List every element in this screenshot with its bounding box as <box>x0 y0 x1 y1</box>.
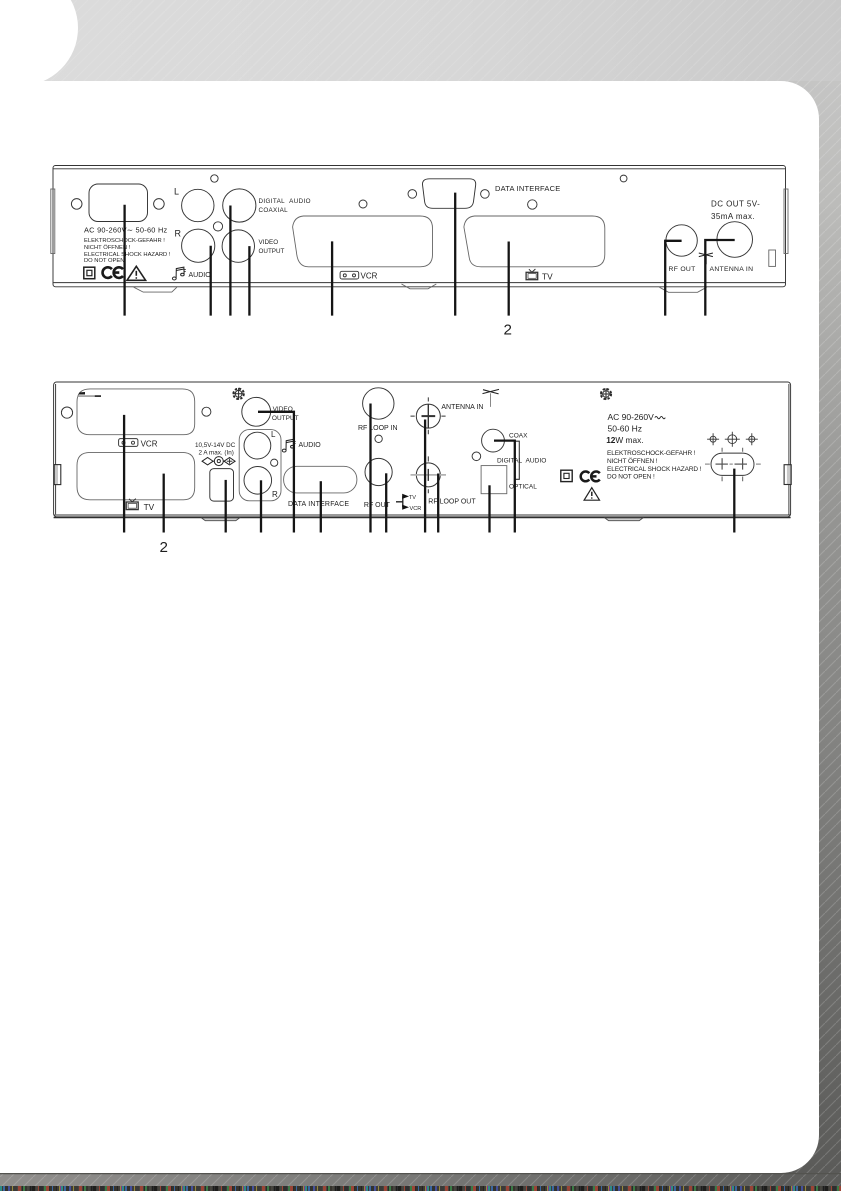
svg-text:NICHT ÖFFNEN !: NICHT ÖFFNEN ! <box>607 457 658 465</box>
svg-text:ELEKTROSCHOCK-GEFAHR !: ELEKTROSCHOCK-GEFAHR ! <box>607 450 696 457</box>
svg-text:DO NOT OPEN: DO NOT OPEN <box>84 258 124 264</box>
svg-text:50-60 Hz: 50-60 Hz <box>608 424 643 434</box>
svg-text:VCR: VCR <box>361 271 378 280</box>
svg-text:DC OUT 5V-: DC OUT 5V- <box>711 199 760 208</box>
svg-text:AUDIO: AUDIO <box>526 458 547 465</box>
svg-text:COAX: COAX <box>509 433 528 440</box>
svg-text:ANTENNA IN: ANTENNA IN <box>710 266 754 273</box>
svg-text:RF OUT: RF OUT <box>669 266 696 273</box>
svg-text:TV: TV <box>409 495 416 501</box>
svg-text:ANTENNA IN: ANTENNA IN <box>441 404 483 411</box>
svg-text:L: L <box>174 187 179 197</box>
svg-text:AC 90-260V: AC 90-260V <box>608 412 655 422</box>
svg-text:TV: TV <box>542 272 553 282</box>
svg-text:RF LOOP IN: RF LOOP IN <box>358 425 398 432</box>
svg-text:2: 2 <box>504 322 512 339</box>
svg-text:12W max.: 12W max. <box>606 435 643 445</box>
svg-text:2: 2 <box>160 539 168 556</box>
svg-text:DATA INTERFACE: DATA INTERFACE <box>288 501 349 508</box>
svg-text:RF LOOP OUT: RF LOOP OUT <box>428 499 476 506</box>
svg-text:OUTPUT: OUTPUT <box>259 248 285 255</box>
svg-text:AC 90-260V∼ 50-60 Hz: AC 90-260V∼ 50-60 Hz <box>84 225 168 234</box>
svg-text:DATA INTERFACE: DATA INTERFACE <box>495 184 560 193</box>
svg-text:COAXIAL: COAXIAL <box>259 207 289 214</box>
svg-text:VCR: VCR <box>410 506 422 512</box>
svg-text:L: L <box>271 430 276 439</box>
svg-text:TV: TV <box>144 502 155 512</box>
svg-text:VIDEO: VIDEO <box>259 239 279 246</box>
svg-text:35mA max.: 35mA max. <box>711 212 755 221</box>
svg-text:2 A max. (In): 2 A max. (In) <box>199 450 234 457</box>
svg-text:AUDIO: AUDIO <box>189 272 212 279</box>
svg-text:ELECTRICAL SHOCK HAZARD !: ELECTRICAL SHOCK HAZARD ! <box>84 252 171 258</box>
svg-text:VCR: VCR <box>141 439 158 448</box>
svg-text:OPTICAL: OPTICAL <box>509 484 537 491</box>
svg-text:DIGITAL: DIGITAL <box>497 458 522 465</box>
svg-text:R: R <box>272 490 278 499</box>
svg-text:AUDIO: AUDIO <box>299 442 322 449</box>
svg-text:DIGITAL AUDIO: DIGITAL AUDIO <box>259 198 311 205</box>
svg-text:10,5V-14V DC: 10,5V-14V DC <box>195 442 236 449</box>
svg-text:ELECTRICAL SHOCK HAZARD !: ELECTRICAL SHOCK HAZARD ! <box>607 466 702 473</box>
svg-text:R: R <box>175 229 182 239</box>
svg-text:DO NOT OPEN !: DO NOT OPEN ! <box>607 474 655 481</box>
